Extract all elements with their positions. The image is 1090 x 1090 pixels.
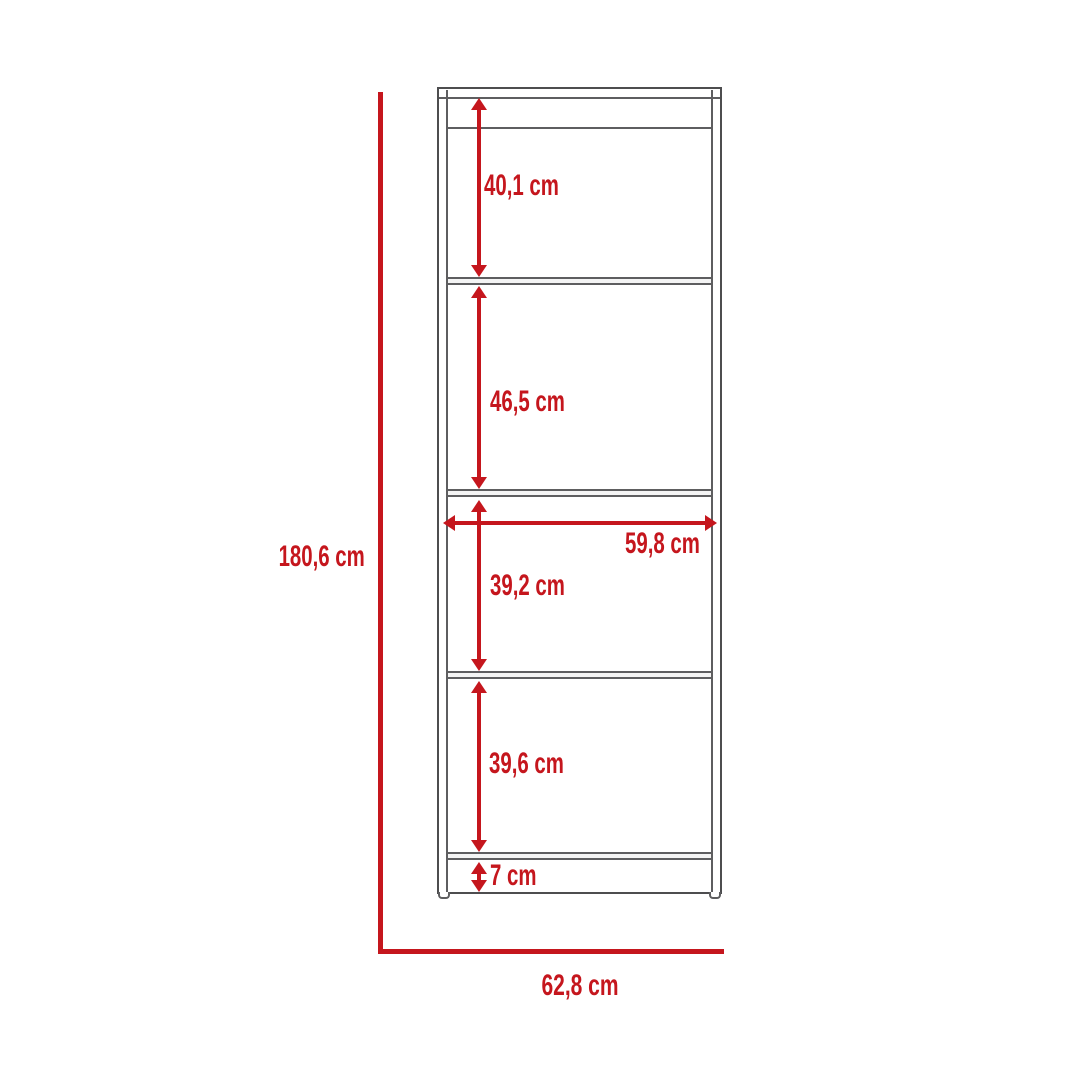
top-rail-line (448, 127, 711, 129)
dimension-diagram-canvas: 40,1 cm 46,5 cm 59,8 cm 39,2 cm 39,6 cm … (0, 0, 1090, 1090)
overall-height-label: 180,6 cm (279, 542, 365, 572)
arrowhead-down-icon (471, 840, 487, 852)
right-panel-inner-line (711, 90, 713, 892)
left-foot (438, 892, 450, 899)
arrowhead-down-icon (471, 477, 487, 489)
dim-arrow-plinth (471, 862, 487, 892)
shelf-line-1 (448, 277, 711, 285)
section-2-height-label: 46,5 cm (490, 387, 565, 417)
shelf-line-4 (448, 852, 711, 860)
arrowhead-down-icon (471, 880, 487, 892)
arrowhead-up-icon (471, 500, 487, 512)
arrowhead-left-icon (443, 515, 455, 531)
dim-arrow-section-2 (471, 286, 487, 489)
shelf-line-2 (448, 489, 711, 497)
right-foot (709, 892, 721, 899)
section-3-height-label: 39,2 cm (490, 571, 565, 601)
arrowhead-up-icon (471, 681, 487, 693)
shelf-line-3 (448, 671, 711, 679)
dim-arrow-section-4 (471, 681, 487, 852)
width-extension-line (378, 949, 724, 954)
arrowhead-up-icon (471, 862, 487, 874)
section-1-height-label: 40,1 cm (484, 171, 559, 201)
interior-width-label: 59,8 cm (625, 529, 700, 559)
arrowhead-down-icon (471, 659, 487, 671)
height-extension-line (378, 92, 383, 954)
arrowhead-down-icon (471, 265, 487, 277)
section-4-height-label: 39,6 cm (489, 749, 564, 779)
arrowhead-right-icon (705, 515, 717, 531)
arrowhead-up-icon (471, 98, 487, 110)
overall-width-label: 62,8 cm (541, 971, 618, 1001)
arrowhead-up-icon (471, 286, 487, 298)
plinth-height-label: 7 cm (490, 861, 537, 891)
